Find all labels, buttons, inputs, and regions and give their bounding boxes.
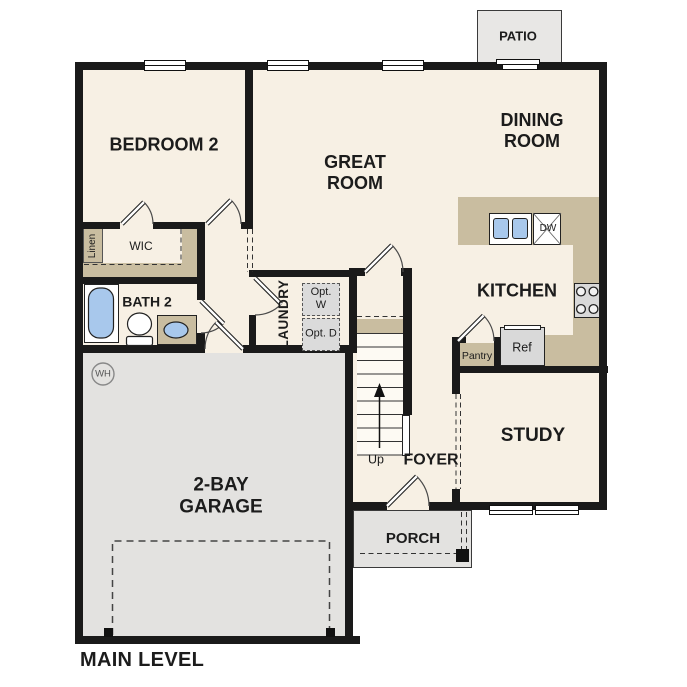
room-label-dining: DINING ROOM xyxy=(480,110,584,152)
plan-title: MAIN LEVEL xyxy=(80,649,204,673)
label-water-heater: WH xyxy=(95,368,111,379)
wall-stair-top-left xyxy=(349,268,365,276)
label-dishwasher: DW xyxy=(540,223,557,235)
stove xyxy=(574,283,600,318)
window-greatroom-2 xyxy=(382,60,424,71)
room-label-patio: PATIO xyxy=(499,28,537,43)
room-label-wic: WIC xyxy=(129,239,152,253)
wall-pantry-top-stub xyxy=(452,337,466,343)
window-greatroom-1 xyxy=(267,60,309,71)
wall-wic-bath xyxy=(83,277,205,284)
wall-study-west-stub xyxy=(452,489,460,510)
wall-laundry-top xyxy=(249,270,353,277)
label-optional-dryer: Opt. D xyxy=(304,328,338,341)
wall-stair-east xyxy=(403,268,412,415)
wic-shelf-bottom xyxy=(83,263,197,277)
window-study-2 xyxy=(535,505,579,515)
bath-vanity xyxy=(157,315,197,345)
kitchen-counter-bottom xyxy=(545,335,600,366)
label-pantry: Pantry xyxy=(462,350,492,362)
wall-kitchen-bottom xyxy=(452,366,608,373)
room-label-garage: 2-BAY GARAGE xyxy=(166,475,276,520)
patio-slider-panel-2 xyxy=(502,64,538,70)
wall-stair-west xyxy=(349,270,357,353)
wall-bedroom2-bottom-c xyxy=(241,222,253,229)
room-label-bedroom2: BEDROOM 2 xyxy=(109,134,218,155)
wall-garage-bottom xyxy=(75,636,360,644)
label-refrigerator: Ref xyxy=(512,341,531,356)
kitchen-sink-bowl-left xyxy=(493,218,509,239)
wall-bath-right-upper xyxy=(197,222,205,300)
stair-landing xyxy=(357,319,403,333)
tub-niche xyxy=(84,284,119,343)
room-label-foyer: FOYER xyxy=(403,452,458,471)
room-label-linen: Linen xyxy=(87,234,99,258)
wall-bath-right-lower xyxy=(197,333,205,345)
label-optional-washer: Opt. W xyxy=(304,286,338,312)
wall-bedroom2-bottom-a xyxy=(83,222,120,229)
wall-laundry-west xyxy=(249,315,256,353)
label-stairs-up: Up xyxy=(368,453,384,468)
wall-exterior-right xyxy=(599,62,607,510)
window-study-1 xyxy=(489,505,533,515)
kitchen-sink-bowl-right xyxy=(512,218,528,239)
wall-garage-top-left xyxy=(83,345,205,353)
stair-steps-bg xyxy=(357,333,403,455)
room-label-bath2: BATH 2 xyxy=(122,294,172,311)
stair-rail xyxy=(402,415,410,456)
wall-exterior-left xyxy=(75,62,83,644)
room-label-laundry: LAUNDRY xyxy=(276,280,292,349)
wall-garage-right xyxy=(345,345,353,644)
refrigerator-top-line xyxy=(504,325,541,330)
wall-bedroom2-right xyxy=(245,62,253,229)
room-label-study: STUDY xyxy=(501,425,565,447)
wic-shelf-side xyxy=(182,227,197,263)
window-bedroom2 xyxy=(144,60,186,71)
floorplan-canvas: PATIO DINING ROOM GREAT ROOM BEDROOM 2 K… xyxy=(0,0,687,687)
room-label-great: GREAT ROOM xyxy=(307,152,403,194)
room-label-porch: PORCH xyxy=(386,530,440,548)
room-label-kitchen: KITCHEN xyxy=(477,280,557,301)
